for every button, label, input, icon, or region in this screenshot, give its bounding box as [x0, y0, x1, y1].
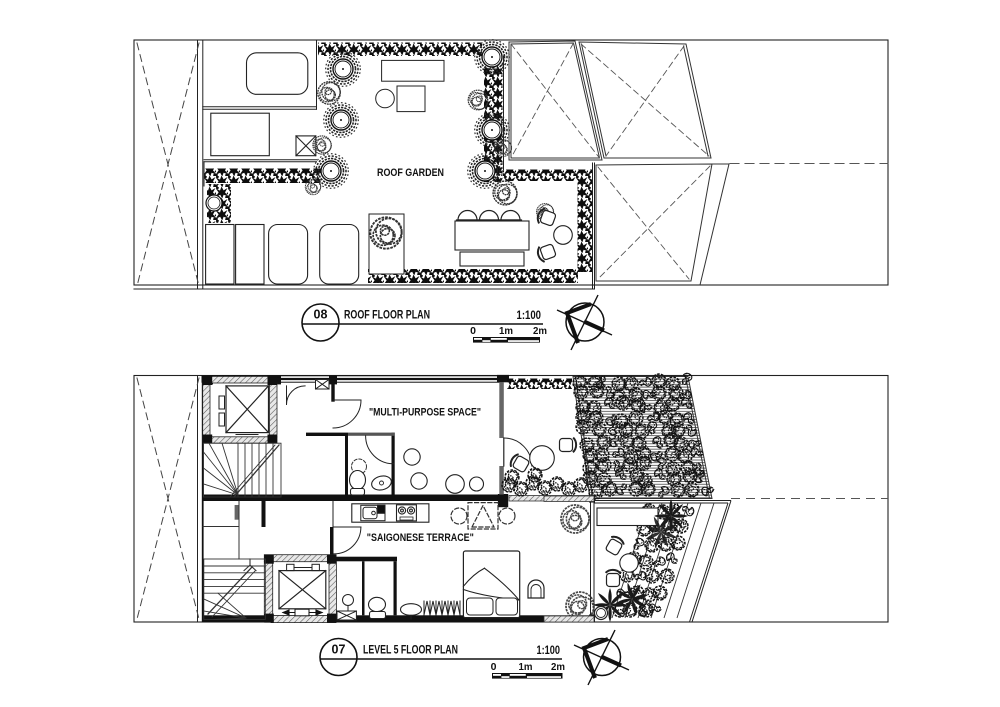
svg-text:ROOF GARDEN: ROOF GARDEN	[377, 167, 444, 179]
svg-text:0: 0	[470, 325, 476, 337]
svg-text:1m: 1m	[519, 661, 533, 673]
svg-text:08: 08	[314, 308, 328, 322]
svg-text:07: 07	[332, 643, 346, 657]
svg-text:0: 0	[491, 661, 497, 673]
svg-text:2m: 2m	[533, 325, 547, 337]
svg-text:1m: 1m	[499, 325, 513, 337]
svg-text:"MULTI-PURPOSE SPACE": "MULTI-PURPOSE SPACE"	[369, 407, 481, 419]
svg-text:1:100: 1:100	[537, 643, 561, 657]
svg-text:1:100: 1:100	[517, 308, 542, 322]
svg-text:ROOF FLOOR PLAN: ROOF FLOOR PLAN	[344, 308, 430, 322]
svg-text:LEVEL 5 FLOOR PLAN: LEVEL 5 FLOOR PLAN	[363, 643, 458, 657]
svg-text:"SAIGONESE TERRACE": "SAIGONESE TERRACE"	[367, 532, 474, 544]
svg-text:2m: 2m	[551, 661, 565, 673]
